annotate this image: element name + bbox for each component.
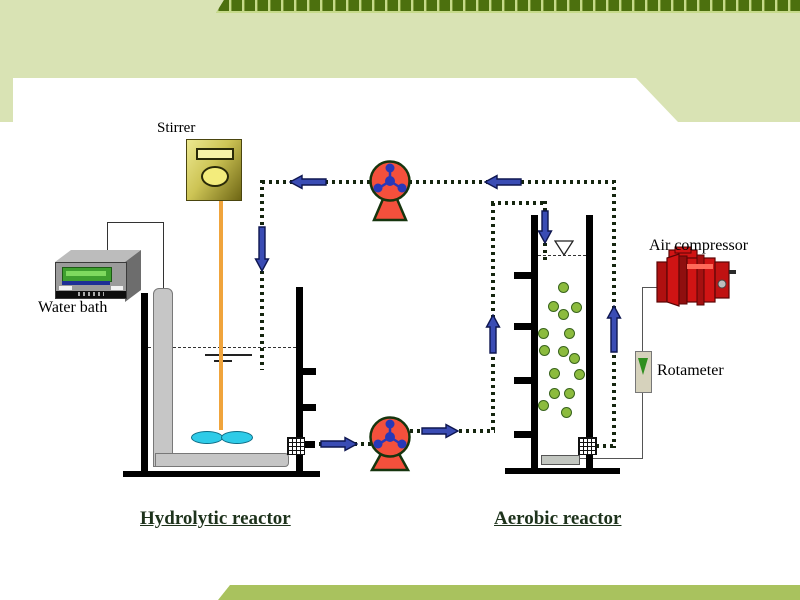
waterbath-icon	[55, 262, 127, 299]
pipe-left-vertical	[260, 180, 264, 370]
waterbath-display	[62, 267, 112, 282]
arrow-right-icon	[320, 436, 358, 452]
arrow-left-icon	[289, 174, 327, 190]
stirrer-shaft	[219, 199, 223, 430]
waterbath-blue-strip	[62, 281, 110, 285]
waterbath-button	[59, 286, 72, 290]
impeller-blade	[221, 431, 253, 444]
arrow-up-icon	[606, 305, 622, 353]
heater-tube-vertical	[153, 288, 173, 467]
rotameter-float	[638, 358, 648, 375]
content-area	[13, 78, 678, 122]
stirrer-motor-icon	[186, 139, 242, 201]
pump-bottom-icon	[364, 414, 416, 472]
hydrolytic-valve-icon	[287, 437, 305, 455]
level-indicator-icon	[554, 240, 574, 256]
arrow-down-icon	[537, 210, 553, 244]
waterbath-button	[111, 286, 123, 290]
aerobic-base	[505, 468, 620, 474]
stirrer-slot	[196, 148, 234, 160]
arrow-left-icon	[484, 174, 522, 190]
stirrer-label: Stirrer	[157, 120, 195, 137]
pipe-transfer-top	[491, 201, 547, 205]
aerobic-liquid-level	[538, 255, 586, 256]
waterbath-keys	[78, 292, 104, 296]
aerobic-left-wall	[531, 215, 538, 468]
air-compressor-icon	[653, 246, 737, 310]
hydrolytic-port	[303, 404, 316, 411]
waterbath-display-bar	[66, 271, 106, 276]
heater-tube-horizontal	[155, 453, 289, 467]
header-texture-strip	[216, 0, 800, 13]
aerobic-right-wall	[586, 215, 593, 468]
arrow-right-icon	[421, 423, 459, 439]
arrow-down-icon	[254, 226, 270, 272]
water-bath-label: Water bath	[38, 299, 107, 317]
rotameter-icon	[635, 351, 652, 393]
sparger	[541, 455, 580, 465]
waterbath-wire	[107, 222, 164, 223]
aerobic-port	[514, 323, 531, 330]
arrow-up-icon	[485, 314, 501, 354]
surface-mark	[205, 354, 252, 356]
surface-mark	[214, 360, 232, 362]
hydrolytic-left-wall	[141, 293, 148, 471]
aerobic-port	[514, 377, 531, 384]
stirrer-knob	[201, 166, 229, 187]
aerobic-port	[514, 431, 531, 438]
waterbath-wire	[163, 222, 164, 289]
impeller-blade	[191, 431, 223, 444]
hydrolytic-base	[123, 471, 320, 477]
aerobic-port	[514, 272, 531, 279]
aerobic-reactor-caption: Aerobic reactor	[494, 508, 622, 530]
air-compressor-label: Air compressor	[649, 237, 748, 255]
slide: Stirrer Water bath	[0, 0, 800, 600]
waterbath-wire	[107, 222, 108, 251]
hydrolytic-reactor-caption: Hydrolytic reactor	[140, 508, 291, 530]
aerobic-valve-icon	[578, 437, 597, 455]
pump-top-icon	[362, 158, 418, 222]
pipe-valve-link	[596, 444, 616, 448]
hydrolytic-port	[303, 368, 316, 375]
footer-band	[218, 585, 800, 600]
rotameter-label: Rotameter	[657, 362, 724, 380]
waterbath-base-band	[56, 291, 126, 298]
